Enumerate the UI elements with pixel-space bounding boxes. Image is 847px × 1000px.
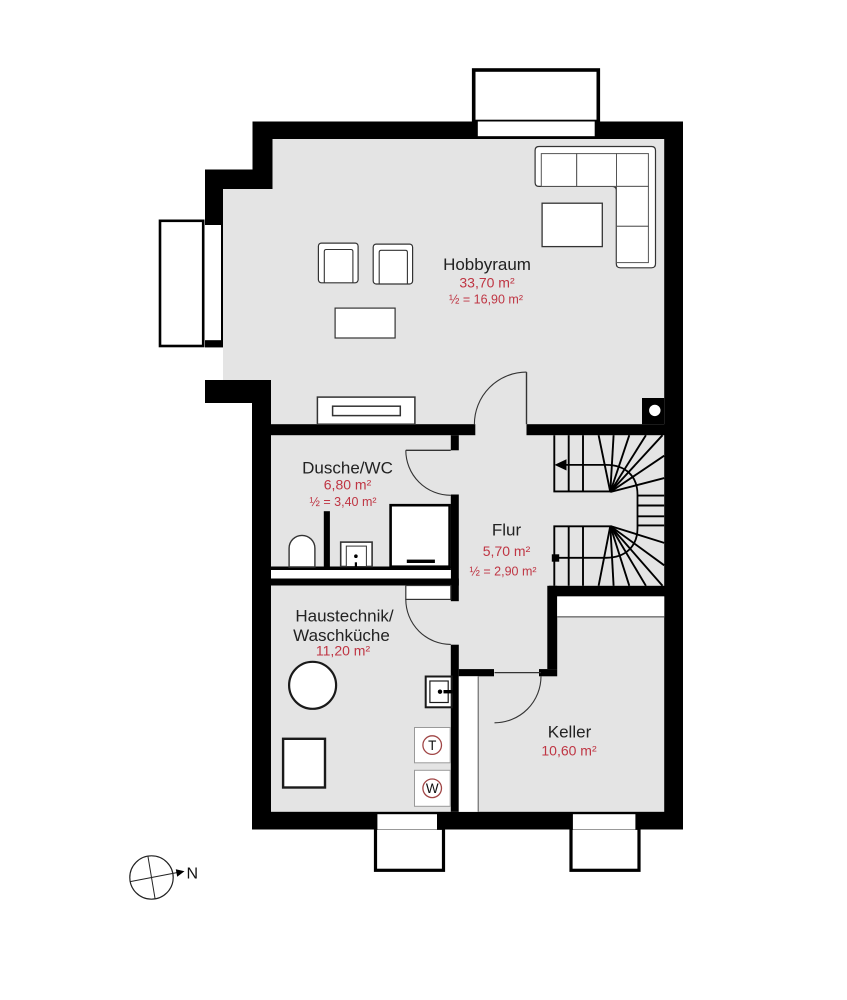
svg-text:½ = 3,40 m²: ½ = 3,40 m² xyxy=(309,495,376,509)
svg-text:T: T xyxy=(428,738,436,753)
svg-text:33,70 m²: 33,70 m² xyxy=(459,275,515,291)
svg-text:Hobbyraum: Hobbyraum xyxy=(443,255,531,274)
svg-text:11,20 m²: 11,20 m² xyxy=(316,643,371,659)
svg-text:Keller: Keller xyxy=(548,723,592,742)
svg-text:6,80 m²: 6,80 m² xyxy=(324,477,372,493)
svg-text:Dusche/WC: Dusche/WC xyxy=(302,458,393,477)
svg-text:W: W xyxy=(426,781,439,796)
svg-text:Flur: Flur xyxy=(492,521,522,540)
svg-text:10,60 m²: 10,60 m² xyxy=(541,743,597,759)
svg-text:½ = 16,90 m²: ½ = 16,90 m² xyxy=(449,293,523,307)
svg-text:N: N xyxy=(187,866,199,883)
svg-text:Haustechnik/: Haustechnik/ xyxy=(295,607,394,626)
svg-text:½ = 2,90 m²: ½ = 2,90 m² xyxy=(469,565,536,579)
svg-text:5,70 m²: 5,70 m² xyxy=(483,543,531,559)
